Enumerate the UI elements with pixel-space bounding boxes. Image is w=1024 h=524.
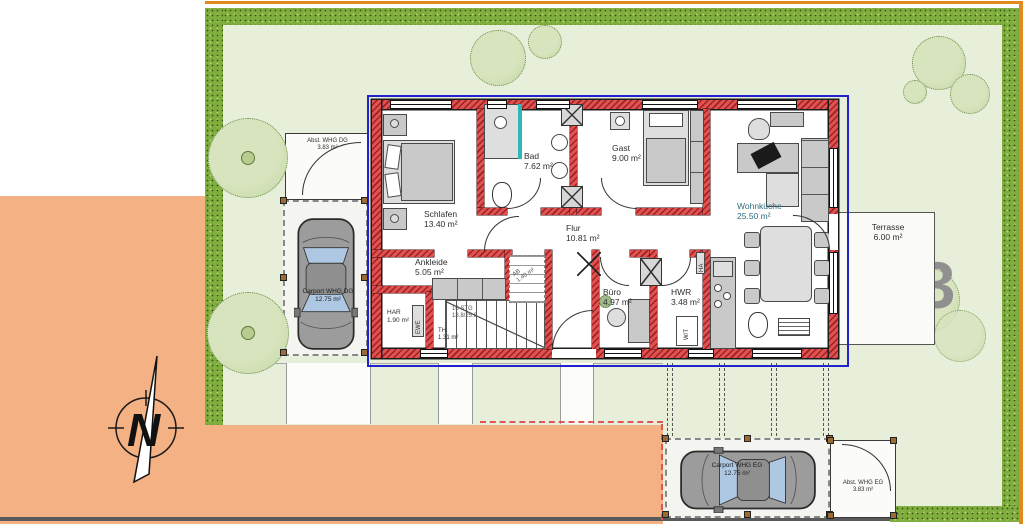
carport-post [662,435,669,442]
floor-grate [778,318,810,336]
closet-row [432,278,506,300]
chair [744,260,760,276]
storage-eg-label: Abst. WHG EG 3.83 m² [834,480,892,494]
chair [744,232,760,248]
interior-wall [630,250,652,257]
tree-trunk-icon [241,326,255,340]
lamp [390,119,399,128]
lamp [390,214,399,223]
carport-eg-label: Carport WHG EG 12.75 m² [702,462,772,478]
tree-trunk-icon [241,151,255,165]
window [829,148,838,208]
room-label-ankleide: Ankleide5.05 m² [415,257,448,277]
window [829,252,838,314]
kitchen-sink [713,261,733,277]
interior-wall [703,109,710,215]
interior-wall [577,208,601,215]
entrance-opening [552,349,596,358]
office-chair [748,118,770,140]
carport-roof-line [823,363,829,436]
walkway-slab [438,363,473,424]
carport-post [280,274,287,281]
room-label-wohnkueche: Wohnküche25.50 m² [737,201,782,221]
window [390,100,452,109]
plot-boundary-top [205,1,1023,4]
parking-boundary-dashed [480,421,663,423]
window [752,349,802,358]
stove-burner [714,300,722,308]
stove-burner [714,284,722,292]
office-chair [607,308,626,327]
terrace-label: Terrasse 6.00 m² [858,222,918,242]
carport-post [744,435,751,442]
carport-post [280,349,287,356]
interior-wall [372,286,432,293]
duct-shaft [561,186,583,208]
blanket [646,138,686,183]
storage-dg-label: Abst. WHG DG 3.83 m² [300,138,355,152]
bed-mattress [401,143,453,201]
interior-wall [426,292,433,349]
carport-post [280,197,287,204]
carport-roof-line [719,363,725,436]
hedge-right [1002,8,1019,520]
carport-post [361,197,368,204]
window [737,100,797,109]
compass-north-label: N [127,404,161,456]
hedge-top [208,8,1004,25]
shower-glass [518,104,522,159]
driveway-bottom [205,424,663,524]
room-label-hwr: HWR3.48 m² [671,287,700,307]
interior-wall [636,208,710,215]
duct-shaft [640,258,662,286]
cross-marker-icon [577,252,601,276]
window [420,349,448,358]
terrace-door-opening [829,214,838,250]
ewe-tag: EWE [416,320,422,334]
tree-icon [950,74,990,114]
window [688,349,714,358]
sofa [801,138,829,222]
toilet [748,312,768,338]
chair [744,288,760,304]
ha-tag: HA [699,264,705,272]
shower [484,104,522,159]
shed-post [890,512,897,519]
car-icon [294,216,358,352]
hedge-bottom-right [890,506,1019,522]
interior-wall [545,250,552,349]
walkway-slab [286,363,371,424]
interior-wall [477,208,507,215]
tree-icon [528,25,562,59]
carport-dg-label: Carport WHG DG 12.75 m² [296,288,360,304]
pillow [649,113,683,127]
car-icon [673,447,823,513]
interior-wall [477,109,484,212]
room-label-gast: Gast9.00 m² [612,143,641,163]
tree-icon [903,80,927,104]
tree-icon [470,30,526,86]
chair [814,288,830,304]
shed-post [890,437,897,444]
chair [814,260,830,276]
stove-burner [723,292,731,300]
exterior-wall [372,100,381,358]
shed-post [827,437,834,444]
interior-wall [372,250,434,257]
washbasin [551,134,568,151]
washbasin [551,162,568,179]
carport-roof-line [667,363,673,436]
carport-post [662,511,669,518]
carport-post [361,349,368,356]
window [487,100,507,109]
window [536,100,570,109]
compass-icon: N [100,350,192,490]
room-label-buero: Büro4.97 m² [603,287,632,307]
room-label-th: TH.1.31 m² [438,328,458,342]
stairs-label: 16 STG18.8/25.8 [452,306,477,320]
washbasin [615,116,625,126]
plot-boundary-right [1019,1,1023,524]
room-label-har: HAR1.90 m² [387,309,409,325]
window [604,349,642,358]
window [642,100,698,109]
shed-post [827,512,834,519]
site-plan: 63 Terrasse 6.00 m² Abst. WHG DG 3.83 m²… [0,0,1024,524]
carport-roof-line [771,363,777,436]
wardrobe [690,110,704,204]
room-label-bad: Bad7.62 m² [524,151,553,171]
carport-post [744,511,751,518]
carport-post [361,274,368,281]
cabinet [770,112,804,127]
shower-head [494,116,507,129]
room-label-flur: Flur10.81 m² [566,223,600,243]
wt-tag: W/T [684,329,690,340]
room-label-schlafen: Schlafen13.40 m² [424,209,458,229]
walkway-slab [560,363,594,424]
